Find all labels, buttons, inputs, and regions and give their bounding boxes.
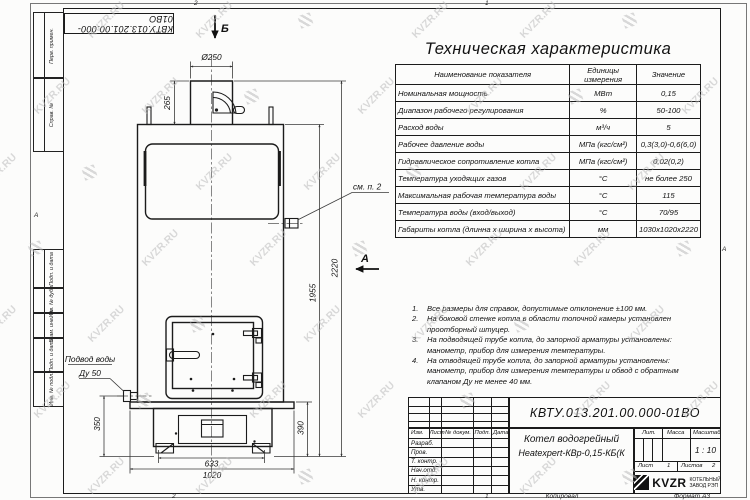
spec-cell: °С [570,187,637,204]
product-name-cell: Котел водогрейный Heatexpert-КВр-0,15-КБ… [509,428,634,494]
spec-row: Расход водым³/ч5 [396,119,701,136]
spec-cell: °С [570,204,637,221]
scale-value: 1 : 10 [690,438,721,461]
note-item: 2.На боковой стенке котла в области топо… [412,314,716,335]
sheet-value: 1 [667,463,670,469]
dim-body-height: 1955 [308,283,318,302]
base-stand [130,402,294,453]
company-subtitle: КОТЕЛЬНЫЙ ЗАВОД РЭП [689,477,720,489]
spec-header-2: Значение [636,65,700,85]
product-name-line2: Heatexpert-КВр-0,15-КБ(К [518,448,624,458]
callout-label: см. п. 2 [353,182,382,192]
spec-cell: Температура уходящих газов [396,170,570,187]
spec-cell: м³/ч [570,119,637,136]
role-label-2: Т. контр. [411,458,438,465]
spec-table: Наименование показателяЕдиницы измерения… [395,64,701,238]
callout-leader [298,193,390,221]
spec-cell: 5 [636,119,700,136]
note-text: Все размеры для справок, допустимые откл… [427,304,647,314]
spec-header-0: Наименование показателя [396,65,570,85]
spec-cell: Температура воды (вход/выход) [396,204,570,221]
title-block-doc-number: КВТУ.013.201.00.000-01ВО [509,398,721,428]
role-label-4: Н. контр. [411,477,439,484]
spec-cell: % [570,102,637,119]
note-number: 4. [412,356,427,387]
ash-door [202,420,224,437]
dim-base-height: 390 [296,421,306,435]
role-label-1: Пров. [411,449,427,456]
dim-inlet-height: 350 [92,417,102,431]
spec-cell: Гидравлическое сопротивление котла [396,153,570,170]
spec-cell: 0,15 [636,85,700,102]
company-logo-cell: KVZR КОТЕЛЬНЫЙ ЗАВОД РЭП [634,471,721,494]
spec-row: Максимальная рабочая температура воды°С1… [396,187,701,204]
role-label-0: Разраб. [411,440,433,447]
dim-overall-width: 1020 [203,470,222,480]
boiler-body [138,125,284,403]
spec-row: Гидравлическое сопротивление котлаМПа (к… [396,153,701,170]
spec-header-1: Единицы измерения [570,65,637,85]
note-text: На подводящей трубе котла, до запорной а… [427,335,672,356]
sheet-label: Лист [638,463,653,469]
spec-cell: МПа (кгс/см²) [570,136,637,153]
sheets-label: Листов [681,463,702,469]
spec-cell: Габариты котла (длинна х ширина х высота… [396,221,570,238]
view-label-a: А [360,253,369,265]
spec-cell: 0,3(3,0)-0,6(6,0) [636,136,700,153]
spec-cell: мм [570,221,637,238]
inlet-leader [110,379,124,392]
role-label-5: Утв. [411,486,425,493]
company-logo-text: KVZR [652,476,686,490]
note-item: 4.На отводящей трубе котла, до запорной … [412,356,716,387]
spec-row: Температура воды (вход/выход)°С70/95 [396,204,701,221]
note-item: 1.Все размеры для справок, допустимые от… [412,304,716,314]
dim-base-width: 633 [205,459,219,469]
sheets-value: 2 [712,463,715,469]
spec-cell: МВт [570,85,637,102]
spec-cell: 115 [636,187,700,204]
chg-col-docnum: № докум. [445,430,471,436]
spec-cell: Максимальная рабочая температура воды [396,187,570,204]
chg-col-izm: Изм. [411,430,424,436]
spec-row: Габариты котла (длинна х ширина х высота… [396,221,701,238]
notes-block: 1.Все размеры для справок, допустимые от… [412,304,716,387]
spec-cell: Рабочее давление воды [396,136,570,153]
dimension-lines [100,62,347,474]
spec-cell: Номинальная мощность [396,85,570,102]
note-item: 3.На подводящей трубе котла, до запорной… [412,335,716,356]
spec-row: Диапазон рабочего регулирования%50-100 [396,102,701,119]
note-number: 3. [412,335,427,356]
spec-cell: МПа (кгс/см²) [570,153,637,170]
note-text: На боковой стенке котла в области топочн… [427,314,671,335]
spec-cell: Расход воды [396,119,570,136]
spec-cell: не более 250 [636,170,700,187]
spec-cell: 70/95 [636,204,700,221]
footer-copied: Копировал [532,493,592,500]
spec-row: Температура уходящих газов°Сне более 250 [396,170,701,187]
company-logo-icon [634,475,649,490]
title-block: Изм. Лист № докум. Подп. Дата Разраб.Про… [408,397,721,494]
spec-row: Рабочее давление водыМПа (кгс/см²)0,3(3,… [396,136,701,153]
role-label-3: Нач.отд. [411,467,437,474]
product-name-line1: Котел водогрейный [524,434,619,445]
note-number: 2. [412,314,427,335]
view-label-b: Б [221,23,229,35]
spec-block: Техническая характеристика Наименование … [395,40,701,238]
spec-row: Номинальная мощностьМВт0,15 [396,85,701,102]
spec-cell: °С [570,170,637,187]
inlet-label-line2: Ду 50 [78,368,101,378]
upper-door [146,144,279,219]
mass-label: Масса [667,430,684,436]
spec-cell: Диапазон рабочего регулирования [396,102,570,119]
top-pin-right [269,107,273,125]
dim-total-height: 2220 [330,258,340,278]
damper-handle [213,92,245,114]
dim-chimney-height: 265 [162,96,172,111]
scale-label: Масштаб [693,430,721,436]
lit-label: Лит. [642,430,656,436]
inlet-label-line1: Подвод воды [65,354,115,364]
chg-col-date: Дата [493,430,509,436]
note-number: 1. [412,304,427,314]
spec-title: Техническая характеристика [395,40,701,59]
foot-right [253,444,271,454]
drawing-sheet: Перв. примен.Справ. №Подп. и датаИнв. № … [0,0,750,500]
spec-cell: 50-100 [636,102,700,119]
dim-chimney-dia: Ø250 [200,52,222,62]
chg-col-list: Лист [430,430,445,436]
furnace-door [166,317,263,399]
spec-cell: 0,02(0,2) [636,153,700,170]
spec-cell: 1030х1020х2220 [636,221,700,238]
footer-format: Формат А3 [662,493,722,500]
note-text: На отводящей трубе котла, до запорной ар… [427,356,679,387]
chg-col-sign: Подп. [475,430,491,436]
top-pin-left [147,107,151,125]
